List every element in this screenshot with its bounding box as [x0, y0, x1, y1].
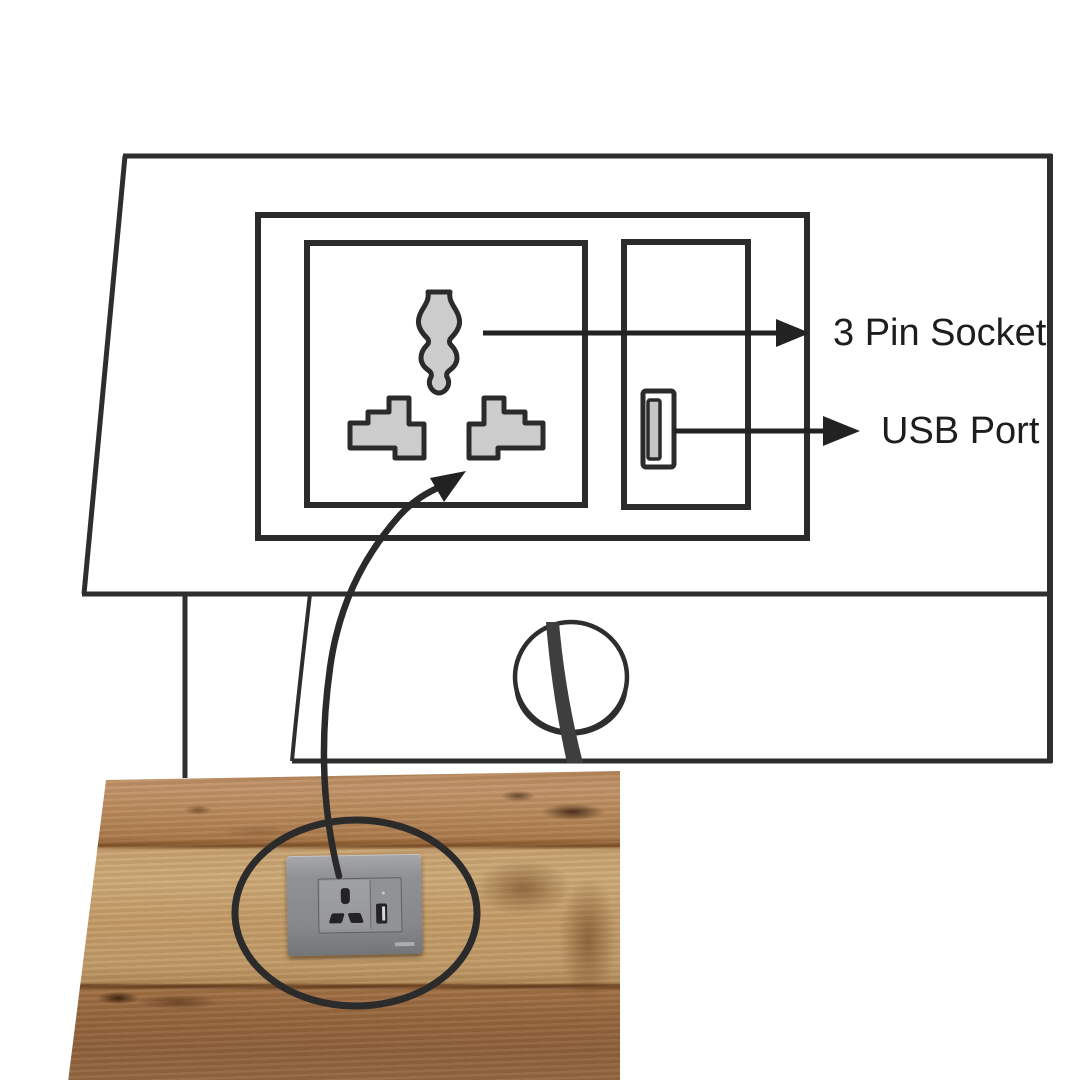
socket-callout-arrow: [483, 319, 810, 347]
live-pin-icon: [350, 398, 424, 458]
apron-corner-curve: [292, 594, 310, 761]
live-hole-icon: [329, 913, 345, 923]
desk-outline: [82, 154, 1052, 778]
plate-outline-box: [258, 215, 807, 538]
usb-callout-arrow: [674, 416, 860, 446]
plate-inset: [318, 877, 403, 933]
usb-port-icon: [643, 391, 674, 467]
grommet-cable-icon: [515, 622, 627, 763]
diagram-canvas: 3 Pin Socket USB Port: [0, 0, 1080, 1080]
photo-socket-module: [320, 880, 372, 930]
plate-brand-mark: [395, 942, 415, 946]
photo-usb-module: [371, 879, 400, 928]
socket-cutout-box: [307, 243, 585, 505]
usb-led-dot: [382, 891, 385, 894]
neutral-hole-icon: [348, 913, 364, 923]
usb-slot-icon: [376, 903, 387, 923]
usb-cutout-box: [624, 242, 748, 507]
earth-pin-icon: [418, 292, 459, 393]
socket-label: 3 Pin Socket: [833, 313, 1046, 353]
usb-slot-tongue: [382, 906, 385, 920]
usb-label: USB Port: [881, 411, 1039, 451]
neutral-pin-icon: [469, 398, 543, 458]
panel-left-edge: [84, 156, 125, 594]
earth-hole-icon: [341, 888, 350, 904]
three-pin-socket-icon: [350, 292, 543, 458]
socket-plate-photo: [286, 854, 423, 956]
cable-strip: [546, 622, 583, 763]
